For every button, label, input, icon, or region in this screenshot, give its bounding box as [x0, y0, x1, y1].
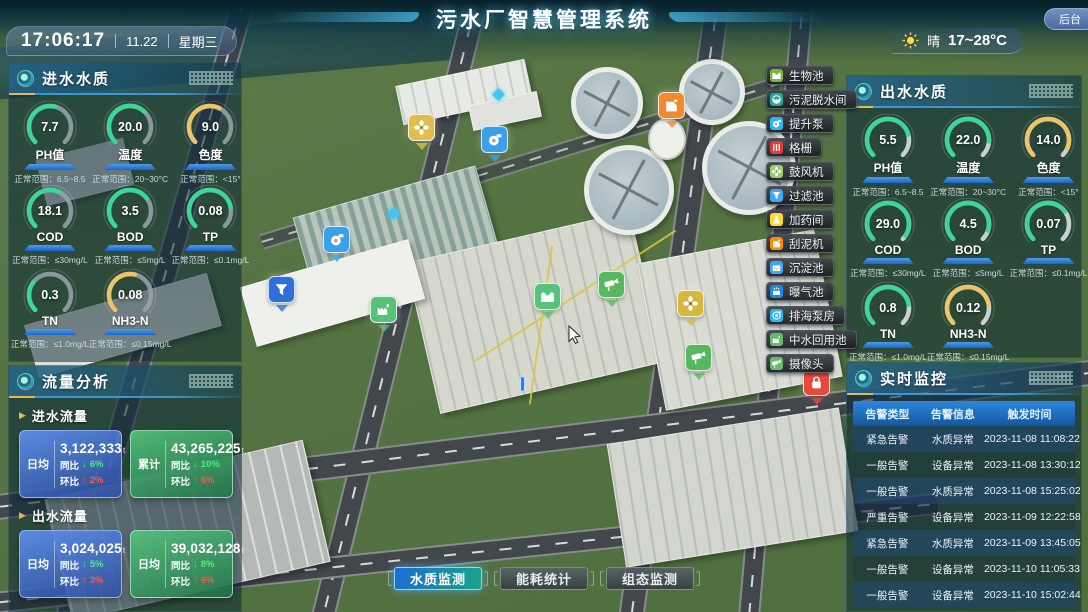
- flow-mom-value: 6%: [201, 575, 215, 586]
- gauge-normal-range: 正常范围：<15°: [1018, 186, 1078, 198]
- filter-pool-icon: [770, 189, 783, 202]
- arrow-down-icon: ↓: [193, 459, 198, 470]
- flow-sections: ▶进水流量日均3,122,333t同比↓6%环比↑2%累计43,265,225t…: [9, 398, 241, 598]
- gauge-TP: 0.07TP正常范围：≤0.1mg/L: [1010, 198, 1088, 282]
- map-clarifier-tank: [679, 59, 745, 125]
- alarm-cell: 紧急告警: [853, 536, 922, 551]
- flow-mom-value: 6%: [201, 475, 215, 486]
- panel-header: 出水水质: [847, 76, 1081, 106]
- flow-card: 日均39,032,128t同比↓8%环比↑6%: [130, 530, 233, 598]
- flow-card-value: 3,122,333t: [60, 441, 125, 456]
- map-marker-camera-icon[interactable]: [598, 271, 625, 298]
- blower-fan-icon: [770, 165, 783, 178]
- gauge-normal-range: 正常范围：6.5~8.5: [852, 186, 923, 198]
- flow-card-value: 39,032,128t: [171, 541, 244, 556]
- map-marker-filter-pool-icon[interactable]: [268, 276, 295, 303]
- alarm-row[interactable]: 严重告警设备异常2023-11-09 12:22:58: [853, 504, 1075, 530]
- facility-button-提升泵[interactable]: 提升泵: [766, 114, 834, 133]
- panel-underline: [847, 393, 1081, 395]
- weather-condition: 晴: [927, 31, 940, 50]
- sludge-dewater-icon: [770, 93, 783, 106]
- bio-pool-icon: [770, 69, 783, 82]
- map-marker-lift-pump-icon[interactable]: [323, 226, 350, 253]
- gauge-normal-range: 正常范围：<15°: [180, 173, 240, 185]
- arrow-up-icon: ↑: [82, 475, 87, 486]
- flow-mom-value: 2%: [90, 475, 104, 486]
- alarm-col-1: 告警信息: [922, 406, 984, 422]
- alarm-cell: 2023-11-10 15:02:44: [984, 589, 1075, 601]
- alarm-row[interactable]: 一般告警设备异常2023-11-10 15:02:44: [853, 582, 1075, 608]
- flow-card-tag: 累计: [131, 456, 165, 472]
- facility-button-加药间[interactable]: 加药间: [766, 210, 834, 229]
- facility-button-生物池[interactable]: 生物池: [766, 66, 834, 85]
- gauge-label: COD: [875, 243, 902, 257]
- alarm-row[interactable]: 一般告警设备异常2023-11-08 13:30:12: [853, 452, 1075, 478]
- gauge-label-ribbon: [862, 258, 914, 264]
- gauge-normal-range: 正常范围：≤0.1mg/L: [172, 254, 250, 266]
- gauge-label: PH值: [874, 159, 903, 176]
- gauge-normal-range: 正常范围：≤1.0mg/L: [11, 338, 89, 350]
- marker-pointer: [693, 373, 705, 380]
- bottom-tab-bar: 水质监测能耗统计组态监测: [394, 567, 694, 590]
- page-title: 污水厂智慧管理系统: [436, 4, 652, 34]
- gauge-label: TP: [203, 230, 218, 244]
- gauge-label-ribbon: [1022, 177, 1074, 183]
- title-wing-left: [264, 12, 421, 22]
- alarm-table-body: 紧急告警水质异常2023-11-08 11:08:22一般告警设备异常2023-…: [847, 426, 1081, 608]
- flow-card-value: 43,265,225t: [171, 441, 244, 456]
- weather-bar: 晴 17~28°C: [890, 28, 1023, 54]
- flow-yoy: 同比↓10%: [171, 458, 244, 472]
- gauge-normal-range: 正常范围：≤5mg/L: [95, 254, 166, 266]
- flow-cards: 日均3,122,333t同比↓6%环比↑2%累计43,265,225t同比↓10…: [19, 430, 231, 498]
- alarm-cell: 2023-11-08 15:25:02: [984, 485, 1075, 497]
- flow-yoy-label: 同比: [60, 558, 79, 572]
- flow-mom: 环比↑3%: [60, 574, 125, 588]
- flow-card-tag: 日均: [131, 556, 165, 572]
- flow-yoy-label: 同比: [171, 458, 190, 472]
- alarm-cell: 2023-11-08 13:30:12: [984, 459, 1075, 471]
- flow-section: ▶进水流量日均3,122,333t同比↓6%环比↑2%累计43,265,225t…: [9, 398, 241, 498]
- arrow-down-icon: ↓: [193, 559, 198, 570]
- alarm-cell: 水质异常: [922, 432, 984, 447]
- facility-button-摄像头[interactable]: 摄像头: [766, 354, 834, 373]
- gauge-BOD: 3.5BOD正常范围：≤5mg/L: [89, 185, 172, 269]
- gauge-label-ribbon: [24, 329, 76, 335]
- facility-button-label: 中水回用池: [789, 332, 847, 348]
- panel-header: 进水水质: [9, 63, 241, 93]
- mud-scraper-icon: [770, 237, 783, 250]
- map-marker-water-reuse-pool-icon[interactable]: [370, 296, 397, 323]
- flow-mom: 环比↑6%: [171, 474, 244, 488]
- water-reuse-pool-icon: [770, 333, 783, 346]
- sedimentation-pool-icon: [770, 261, 783, 274]
- facility-button-list: 生物池污泥脱水间提升泵格栅鼓风机过滤池加药间刮泥机沉淀池曝气池排海泵房中水回用池…: [766, 66, 857, 373]
- flow-mom-label: 环比: [60, 474, 79, 488]
- flow-card-unit: t: [123, 445, 126, 455]
- flow-section-header: ▶进水流量: [19, 406, 231, 425]
- gauge-label: 温度: [118, 146, 142, 163]
- marker-pointer: [666, 121, 678, 128]
- gauge-label: NH3-N: [950, 327, 987, 341]
- flow-card: 日均3,122,333t同比↓6%环比↑2%: [19, 430, 122, 498]
- flow-analysis-panel: 流量分析 ▶进水流量日均3,122,333t同比↓6%环比↑2%累计43,265…: [8, 365, 242, 612]
- map-marker-mud-scraper-icon[interactable]: [658, 92, 685, 119]
- gauge-label: 温度: [956, 159, 980, 176]
- gauge-value: 7.7: [11, 120, 89, 134]
- gauge-value: 3.5: [89, 204, 172, 218]
- realtime-monitor-title: 实时监控: [880, 368, 1021, 389]
- flow-mom-label: 环比: [60, 574, 79, 588]
- facility-button-label: 排海泵房: [789, 308, 835, 324]
- flow-card-numbers: 3,024,025t同比↓5%环比↑3%: [54, 541, 125, 588]
- gauge-label-ribbon: [184, 164, 236, 170]
- facility-button-label: 沉淀池: [789, 260, 824, 276]
- flow-card-numbers: 39,032,128t同比↓8%环比↑6%: [165, 541, 244, 588]
- flow-card: 日均3,024,025t同比↓5%环比↑3%: [19, 530, 122, 598]
- flow-yoy-value: 6%: [90, 459, 104, 470]
- clock-date: 11.22: [126, 34, 158, 49]
- flow-mom-label: 环比: [171, 574, 190, 588]
- facility-button-label: 格栅: [789, 140, 812, 156]
- facility-button-格栅[interactable]: 格栅: [766, 138, 822, 157]
- facility-button-label: 生物池: [789, 68, 824, 84]
- flow-yoy-value: 8%: [201, 559, 215, 570]
- gauge-value: 29.0: [849, 217, 927, 231]
- panel-dots-decor: [1029, 84, 1073, 98]
- gauge-色度: 9.0色度正常范围：<15°: [172, 101, 250, 185]
- gauge-TP: 0.08TP正常范围：≤0.1mg/L: [172, 185, 250, 269]
- flow-section-label: 出水流量: [32, 506, 88, 525]
- arrow-up-icon: ↑: [193, 575, 198, 586]
- flow-mom-value: 3%: [90, 575, 104, 586]
- alarm-row[interactable]: 紧急告警水质异常2023-11-08 11:08:22: [853, 426, 1075, 452]
- tab-组态监测[interactable]: 组态监测: [606, 567, 694, 590]
- gauge-NH3-N: 0.08NH3-N正常范围：≤0.15mg/L: [89, 269, 172, 353]
- gauge-normal-range: 正常范围：≤0.15mg/L: [89, 338, 172, 350]
- flow-mom-label: 环比: [171, 474, 190, 488]
- gauge-BOD: 4.5BOD正常范围：≤5mg/L: [927, 198, 1010, 282]
- panel-bullet-icon: [855, 83, 872, 100]
- gauge-value: 18.1: [11, 204, 89, 218]
- gauge-value: 9.0: [172, 120, 250, 134]
- alarm-table-header: 告警类型告警信息触发时间: [853, 401, 1075, 426]
- facility-button-曝气池[interactable]: 曝气池: [766, 282, 834, 301]
- alarm-cell: 严重告警: [853, 510, 922, 525]
- aeration-pool-icon: [770, 285, 783, 298]
- gauge-TN: 0.8TN正常范围：≤1.0mg/L: [849, 282, 927, 366]
- flow-section: ▶出水流量日均3,024,025t同比↓5%环比↑3%日均39,032,128t…: [9, 498, 241, 598]
- alarm-row[interactable]: 紧急告警水质异常2023-11-09 13:45:05: [853, 530, 1075, 556]
- flow-yoy-label: 同比: [60, 458, 79, 472]
- backstage-button[interactable]: 后台: [1044, 8, 1088, 30]
- gauge-label-ribbon: [862, 342, 914, 348]
- alarm-cell: 2023-11-08 11:08:22: [984, 433, 1075, 445]
- map-marker-blower-fan-icon[interactable]: [408, 114, 435, 141]
- facility-button-刮泥机[interactable]: 刮泥机: [766, 234, 834, 253]
- gauge-value: 0.3: [11, 288, 89, 302]
- gauge-normal-range: 正常范围：≤0.1mg/L: [1010, 267, 1088, 279]
- flow-yoy-value: 5%: [90, 559, 104, 570]
- alarm-row[interactable]: 一般告警水质异常2023-11-08 15:25:02: [853, 478, 1075, 504]
- panel-header: 流量分析: [9, 366, 241, 396]
- alarm-row[interactable]: 一般告警设备异常2023-11-10 11:05:33: [853, 556, 1075, 582]
- separator: [168, 34, 169, 48]
- marker-pointer: [542, 312, 554, 319]
- gauge-label: BOD: [955, 243, 982, 257]
- marker-pointer: [606, 300, 618, 307]
- section-arrow-icon: ▶: [19, 511, 26, 520]
- gauge-色度: 14.0色度正常范围：<15°: [1010, 114, 1088, 198]
- sea-outfall-pump-icon: [770, 309, 783, 322]
- gauge-label: TN: [880, 327, 896, 341]
- panel-bullet-icon: [855, 370, 872, 387]
- alarm-cell: 一般告警: [853, 562, 922, 577]
- section-arrow-icon: ▶: [19, 411, 26, 420]
- alarm-cell: 设备异常: [922, 562, 984, 577]
- bar-screen-icon: [770, 141, 783, 154]
- flow-yoy: 同比↓6%: [60, 458, 125, 472]
- gauge-value: 0.08: [172, 204, 250, 218]
- inlet-quality-title: 进水水质: [42, 68, 181, 89]
- gauge-label-ribbon: [942, 177, 994, 183]
- separator: [115, 34, 116, 48]
- facility-button-label: 鼓风机: [789, 164, 824, 180]
- panel-header: 实时监控: [847, 363, 1081, 393]
- gauge-label: 色度: [198, 146, 222, 163]
- flow-card-numbers: 43,265,225t同比↓10%环比↑6%: [165, 441, 244, 488]
- gauge-normal-range: 正常范围：6.5~8.5: [14, 173, 85, 185]
- alarm-cell: 设备异常: [922, 458, 984, 473]
- flow-cards: 日均3,024,025t同比↓5%环比↑3%日均39,032,128t同比↓8%…: [19, 530, 231, 598]
- facility-button-label: 曝气池: [789, 284, 824, 300]
- flow-yoy: 同比↓5%: [60, 558, 125, 572]
- alarm-cell: 紧急告警: [853, 432, 922, 447]
- gauge-label-ribbon: [1022, 258, 1074, 264]
- gauge-value: 0.08: [89, 288, 172, 302]
- map-clarifier-tank: [571, 67, 643, 139]
- facility-button-label: 污泥脱水间: [789, 92, 847, 108]
- alarm-cell: 一般告警: [853, 588, 922, 603]
- flow-card-unit: t: [242, 545, 245, 555]
- clock-bar: 17:06:17 11.22 星期三: [6, 26, 237, 56]
- flow-card-unit: t: [123, 545, 126, 555]
- alarm-cell: 2023-11-09 12:22:58: [984, 511, 1075, 523]
- gauge-PH值: 7.7PH值正常范围：6.5~8.5: [11, 101, 89, 185]
- gauge-PH值: 5.5PH值正常范围：6.5~8.5: [849, 114, 927, 198]
- alarm-cell: 2023-11-09 13:45:05: [984, 537, 1075, 549]
- gauge-label-ribbon: [24, 164, 76, 170]
- facility-button-label: 加药间: [789, 212, 824, 228]
- inlet-quality-panel: 进水水质 7.7PH值正常范围：6.5~8.520.0温度正常范围：20~30°…: [8, 62, 242, 362]
- flow-yoy-value: 10%: [201, 459, 220, 470]
- facility-button-label: 提升泵: [789, 116, 824, 132]
- sun-icon: [902, 32, 919, 49]
- alarm-cell: 2023-11-10 11:05:33: [984, 563, 1075, 575]
- flow-card-tag: 日均: [20, 456, 54, 472]
- map-pin: [520, 376, 525, 392]
- gauge-normal-range: 正常范围：20~30°C: [92, 173, 168, 185]
- arrow-down-icon: ↓: [82, 559, 87, 570]
- gauge-label-ribbon: [862, 177, 914, 183]
- arrow-down-icon: ↓: [82, 459, 87, 470]
- inlet-gauge-grid: 7.7PH值正常范围：6.5~8.520.0温度正常范围：20~30°C9.0色…: [9, 95, 241, 353]
- flow-section-label: 进水流量: [32, 406, 88, 425]
- alarm-cell: 水质异常: [922, 536, 984, 551]
- gauge-label: TN: [42, 314, 58, 328]
- tab-水质监测[interactable]: 水质监测: [394, 567, 482, 590]
- dosing-room-icon: [770, 213, 783, 226]
- outlet-quality-panel: 出水水质 5.5PH值正常范围：6.5~8.522.0温度正常范围：20~30°…: [846, 75, 1082, 358]
- flow-card-value: 3,024,025t: [60, 541, 125, 556]
- facility-button-过滤池[interactable]: 过滤池: [766, 186, 834, 205]
- gauge-label-ribbon: [184, 245, 236, 251]
- tab-能耗统计[interactable]: 能耗统计: [500, 567, 588, 590]
- camera-icon: [770, 357, 783, 370]
- gauge-value: 0.07: [1010, 217, 1088, 231]
- gauge-value: 14.0: [1010, 133, 1088, 147]
- map-marker-blower-fan-icon[interactable]: [677, 290, 704, 317]
- gauge-value: 20.0: [89, 120, 172, 134]
- title-wing-right: [666, 12, 823, 22]
- flow-yoy-label: 同比: [171, 558, 190, 572]
- gauge-label: 色度: [1036, 159, 1060, 176]
- flow-yoy: 同比↓8%: [171, 558, 244, 572]
- facility-button-中水回用池[interactable]: 中水回用池: [766, 330, 857, 349]
- gauge-label-ribbon: [104, 329, 156, 335]
- gauge-NH3-N: 0.12NH3-N正常范围：≤0.15mg/L: [927, 282, 1010, 366]
- flow-mom: 环比↑2%: [60, 474, 125, 488]
- flow-card-tag: 日均: [20, 556, 54, 572]
- gauge-COD: 29.0COD正常范围：≤30mg/L: [849, 198, 927, 282]
- arrow-up-icon: ↑: [193, 475, 198, 486]
- facility-button-沉淀池[interactable]: 沉淀池: [766, 258, 834, 277]
- gauge-label: COD: [37, 230, 64, 244]
- gauge-COD: 18.1COD正常范围：≤30mg/L: [11, 185, 89, 269]
- facility-button-排海泵房[interactable]: 排海泵房: [766, 306, 845, 325]
- clock-time: 17:06:17: [21, 30, 105, 52]
- gauge-温度: 20.0温度正常范围：20~30°C: [89, 101, 172, 185]
- alarm-col-2: 触发时间: [984, 406, 1075, 422]
- arrow-up-icon: ↑: [82, 575, 87, 586]
- gauge-normal-range: 正常范围：≤5mg/L: [933, 267, 1004, 279]
- realtime-monitor-panel: 实时监控 告警类型告警信息触发时间 紧急告警水质异常2023-11-08 11:…: [846, 362, 1082, 612]
- gauge-label-ribbon: [104, 164, 156, 170]
- facility-button-label: 摄像头: [789, 356, 824, 372]
- alarm-cell: 一般告警: [853, 458, 922, 473]
- panel-bullet-icon: [17, 373, 34, 390]
- weather-temp-range: 17~28°C: [948, 32, 1007, 49]
- facility-button-label: 过滤池: [789, 188, 824, 204]
- panel-dots-decor: [189, 374, 233, 388]
- gauge-label: PH值: [36, 146, 65, 163]
- marker-pointer: [331, 255, 343, 262]
- gauge-value: 0.12: [927, 301, 1010, 315]
- gauge-label-ribbon: [942, 258, 994, 264]
- gauge-label-ribbon: [24, 245, 76, 251]
- gauge-label-ribbon: [104, 245, 156, 251]
- gauge-value: 0.8: [849, 301, 927, 315]
- marker-pointer: [416, 143, 428, 150]
- outlet-gauge-grid: 5.5PH值正常范围：6.5~8.522.0温度正常范围：20~30°C14.0…: [847, 108, 1081, 366]
- alarm-cell: 设备异常: [922, 510, 984, 525]
- gauge-normal-range: 正常范围：≤30mg/L: [850, 267, 926, 279]
- panel-dots-decor: [1029, 371, 1073, 385]
- marker-pointer: [276, 305, 288, 312]
- facility-button-污泥脱水间[interactable]: 污泥脱水间: [766, 90, 857, 109]
- facility-button-label: 刮泥机: [789, 236, 824, 252]
- gauge-label: TP: [1041, 243, 1056, 257]
- map-marker-bio-pool-icon[interactable]: [534, 283, 561, 310]
- gauge-TN: 0.3TN正常范围：≤1.0mg/L: [11, 269, 89, 353]
- marker-pointer: [489, 155, 501, 162]
- panel-dots-decor: [189, 71, 233, 85]
- clock-weekday: 星期三: [179, 32, 218, 51]
- marker-pointer: [811, 398, 823, 405]
- alarm-cell: 设备异常: [922, 588, 984, 603]
- alarm-col-0: 告警类型: [853, 406, 922, 422]
- flow-analysis-title: 流量分析: [42, 371, 181, 392]
- gauge-label: NH3-N: [112, 314, 149, 328]
- outlet-quality-title: 出水水质: [880, 81, 1021, 102]
- gauge-normal-range: 正常范围：20~30°C: [930, 186, 1006, 198]
- gauge-normal-range: 正常范围：≤30mg/L: [12, 254, 88, 266]
- alarm-cell: 一般告警: [853, 484, 922, 499]
- flow-section-header: ▶出水流量: [19, 506, 231, 525]
- gauge-value: 4.5: [927, 217, 1010, 231]
- dashboard: 污水厂智慧管理系统 17:06:17 11.22 星期三 晴 17~28°C 后…: [0, 0, 1088, 612]
- marker-pointer: [378, 325, 390, 332]
- flow-card: 累计43,265,225t同比↓10%环比↑6%: [130, 430, 233, 498]
- gauge-value: 5.5: [849, 133, 927, 147]
- flow-card-unit: t: [242, 445, 245, 455]
- mouse-cursor: [568, 325, 584, 350]
- flow-mom: 环比↑6%: [171, 574, 244, 588]
- marker-pointer: [685, 319, 697, 326]
- facility-button-鼓风机[interactable]: 鼓风机: [766, 162, 834, 181]
- map-marker-camera-icon[interactable]: [685, 344, 712, 371]
- alarm-cell: 水质异常: [922, 484, 984, 499]
- gauge-label-ribbon: [942, 342, 994, 348]
- gauge-value: 22.0: [927, 133, 1010, 147]
- map-marker-lift-pump-icon[interactable]: [481, 126, 508, 153]
- gauge-温度: 22.0温度正常范围：20~30°C: [927, 114, 1010, 198]
- flow-card-numbers: 3,122,333t同比↓6%环比↑2%: [54, 441, 125, 488]
- gauge-label: BOD: [117, 230, 144, 244]
- lift-pump-icon: [770, 117, 783, 130]
- panel-bullet-icon: [17, 70, 34, 87]
- map-marker-alarm-lock-icon[interactable]: [803, 369, 830, 396]
